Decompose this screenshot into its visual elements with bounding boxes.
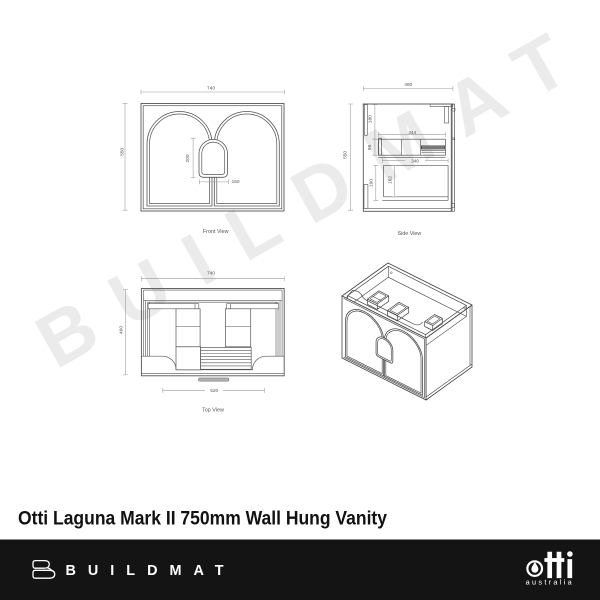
svg-text:340: 340 [411, 158, 419, 164]
svg-text:96: 96 [367, 144, 373, 150]
svg-text:200: 200 [185, 154, 191, 162]
svg-text:australia: australia [526, 578, 574, 587]
svg-text:180: 180 [367, 115, 373, 123]
svg-text:460: 460 [119, 326, 125, 334]
svg-text:550: 550 [343, 151, 349, 159]
svg-text:Front View: Front View [203, 229, 229, 235]
svg-text:740: 740 [207, 86, 215, 92]
svg-text:162: 162 [388, 176, 394, 184]
svg-text:460: 460 [404, 82, 412, 88]
svg-text:550: 550 [119, 147, 125, 155]
svg-text:344: 344 [408, 130, 416, 136]
svg-text:BUILDMAT: BUILDMAT [66, 563, 236, 579]
svg-text:Top View: Top View [202, 407, 224, 413]
svg-text:Otti Laguna Mark II 750mm Wall: Otti Laguna Mark II 750mm Wall Hung Vani… [18, 508, 387, 530]
svg-text:520: 520 [210, 388, 218, 394]
svg-text:740: 740 [207, 271, 215, 277]
svg-text:190: 190 [369, 179, 375, 187]
svg-text:150: 150 [232, 179, 240, 185]
svg-text:Side View: Side View [397, 231, 421, 237]
